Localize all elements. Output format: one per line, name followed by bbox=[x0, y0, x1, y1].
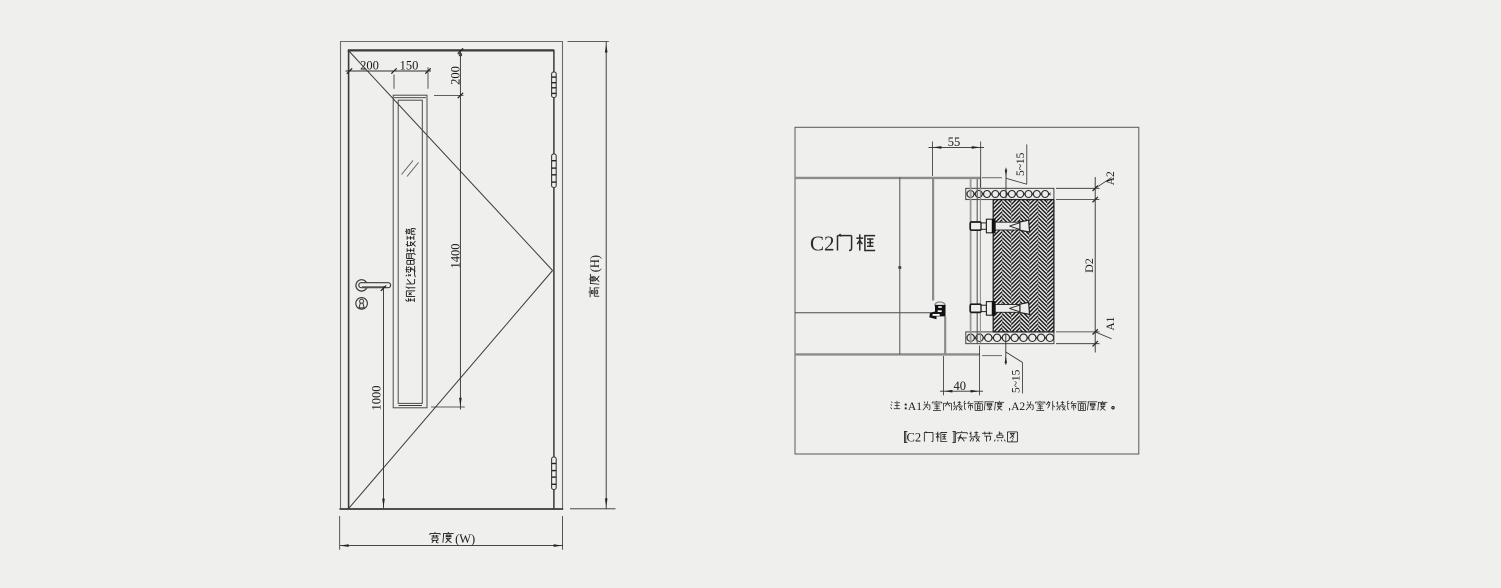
svg-text:200: 200 bbox=[360, 59, 379, 73]
svg-text:A1: A1 bbox=[1105, 316, 1117, 330]
svg-text:150: 150 bbox=[400, 59, 419, 73]
svg-text:200: 200 bbox=[448, 66, 462, 85]
svg-text:A2: A2 bbox=[1105, 171, 1117, 185]
svg-text:(W): (W) bbox=[455, 532, 475, 546]
svg-text:A2: A2 bbox=[1011, 401, 1025, 413]
svg-text:(H): (H) bbox=[588, 255, 602, 272]
svg-text:5~15: 5~15 bbox=[1011, 369, 1023, 393]
svg-text:D2: D2 bbox=[1082, 258, 1096, 273]
svg-text:40: 40 bbox=[954, 379, 967, 393]
svg-text:5~15: 5~15 bbox=[1015, 152, 1027, 176]
svg-text:1400: 1400 bbox=[449, 244, 463, 269]
svg-text:C2: C2 bbox=[907, 430, 922, 444]
svg-text:55: 55 bbox=[948, 135, 961, 149]
svg-text:1000: 1000 bbox=[369, 386, 383, 411]
svg-text:C2: C2 bbox=[810, 232, 835, 256]
svg-text:A1: A1 bbox=[908, 401, 922, 413]
